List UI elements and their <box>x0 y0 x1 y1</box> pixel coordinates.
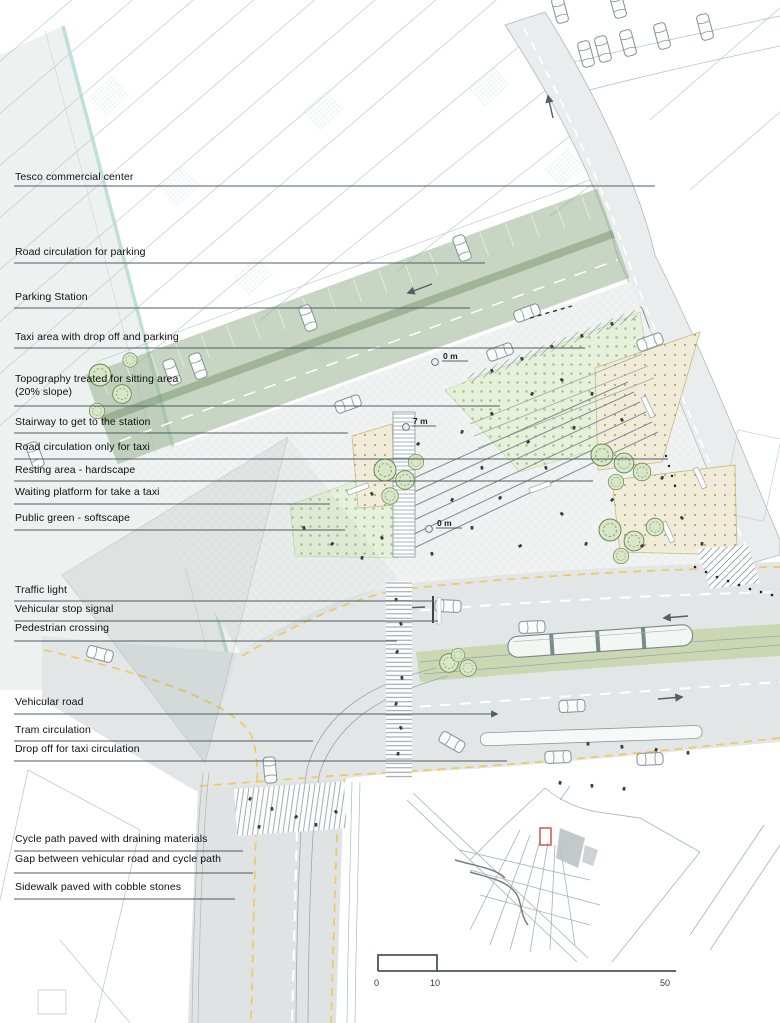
inset-site-marker <box>540 828 551 845</box>
label-stairway: Stairway to get to the station <box>15 416 151 429</box>
label-tram-circulation: Tram circulation <box>15 724 91 737</box>
label-drop-off-taxi: Drop off for taxi circulation <box>15 743 140 756</box>
label-vehicular-road: Vehicular road <box>15 696 84 709</box>
pedestrian-crossing-south <box>234 781 347 836</box>
scale-bar: 0 10 50 <box>374 955 676 988</box>
elevation-0m-band: 0 m <box>443 351 458 361</box>
label-gap-road-cycle: Gap between vehicular road and cycle pat… <box>15 853 221 866</box>
label-taxi-area: Taxi area with drop off and parking <box>15 331 179 344</box>
label-parking-station: Parking Station <box>15 291 88 304</box>
label-sidewalk-cobble: Sidewalk paved with cobble stones <box>15 881 181 894</box>
elevation-0m-plaza: 0 m <box>437 518 452 528</box>
label-vehicular-stop-signal: Vehicular stop signal <box>15 603 113 616</box>
stop-signal-bar <box>437 598 441 624</box>
inset-location-map <box>407 786 780 962</box>
scale-tick-50: 50 <box>660 978 670 988</box>
label-traffic-light: Traffic light <box>15 584 67 597</box>
pedestrian-crossing-main <box>386 581 412 778</box>
site-plan-sheet: 0 10 50 0 m 7 m 0 m Tesco <box>0 0 780 1023</box>
label-resting-area: Resting area - hardscape <box>15 464 135 477</box>
label-waiting-platform: Waiting platform for take a taxi <box>15 486 160 499</box>
scale-tick-0: 0 <box>374 978 379 988</box>
label-public-green: Public green - softscape <box>15 512 130 525</box>
label-tesco-commercial-center: Tesco commercial center <box>15 171 133 184</box>
label-cycle-path: Cycle path paved with draining materials <box>15 833 208 846</box>
label-road-circulation-parking: Road circulation for parking <box>15 246 146 259</box>
label-topography-sitting-area: Topography treated for sitting area (20%… <box>15 373 178 398</box>
scale-tick-10: 10 <box>430 978 440 988</box>
label-road-only-taxi: Road circulation only for taxi <box>15 441 150 454</box>
elevation-7m-stairs: 7 m <box>413 416 428 426</box>
label-pedestrian-crossing: Pedestrian crossing <box>15 622 109 635</box>
context-sketch-lines <box>0 770 140 1023</box>
